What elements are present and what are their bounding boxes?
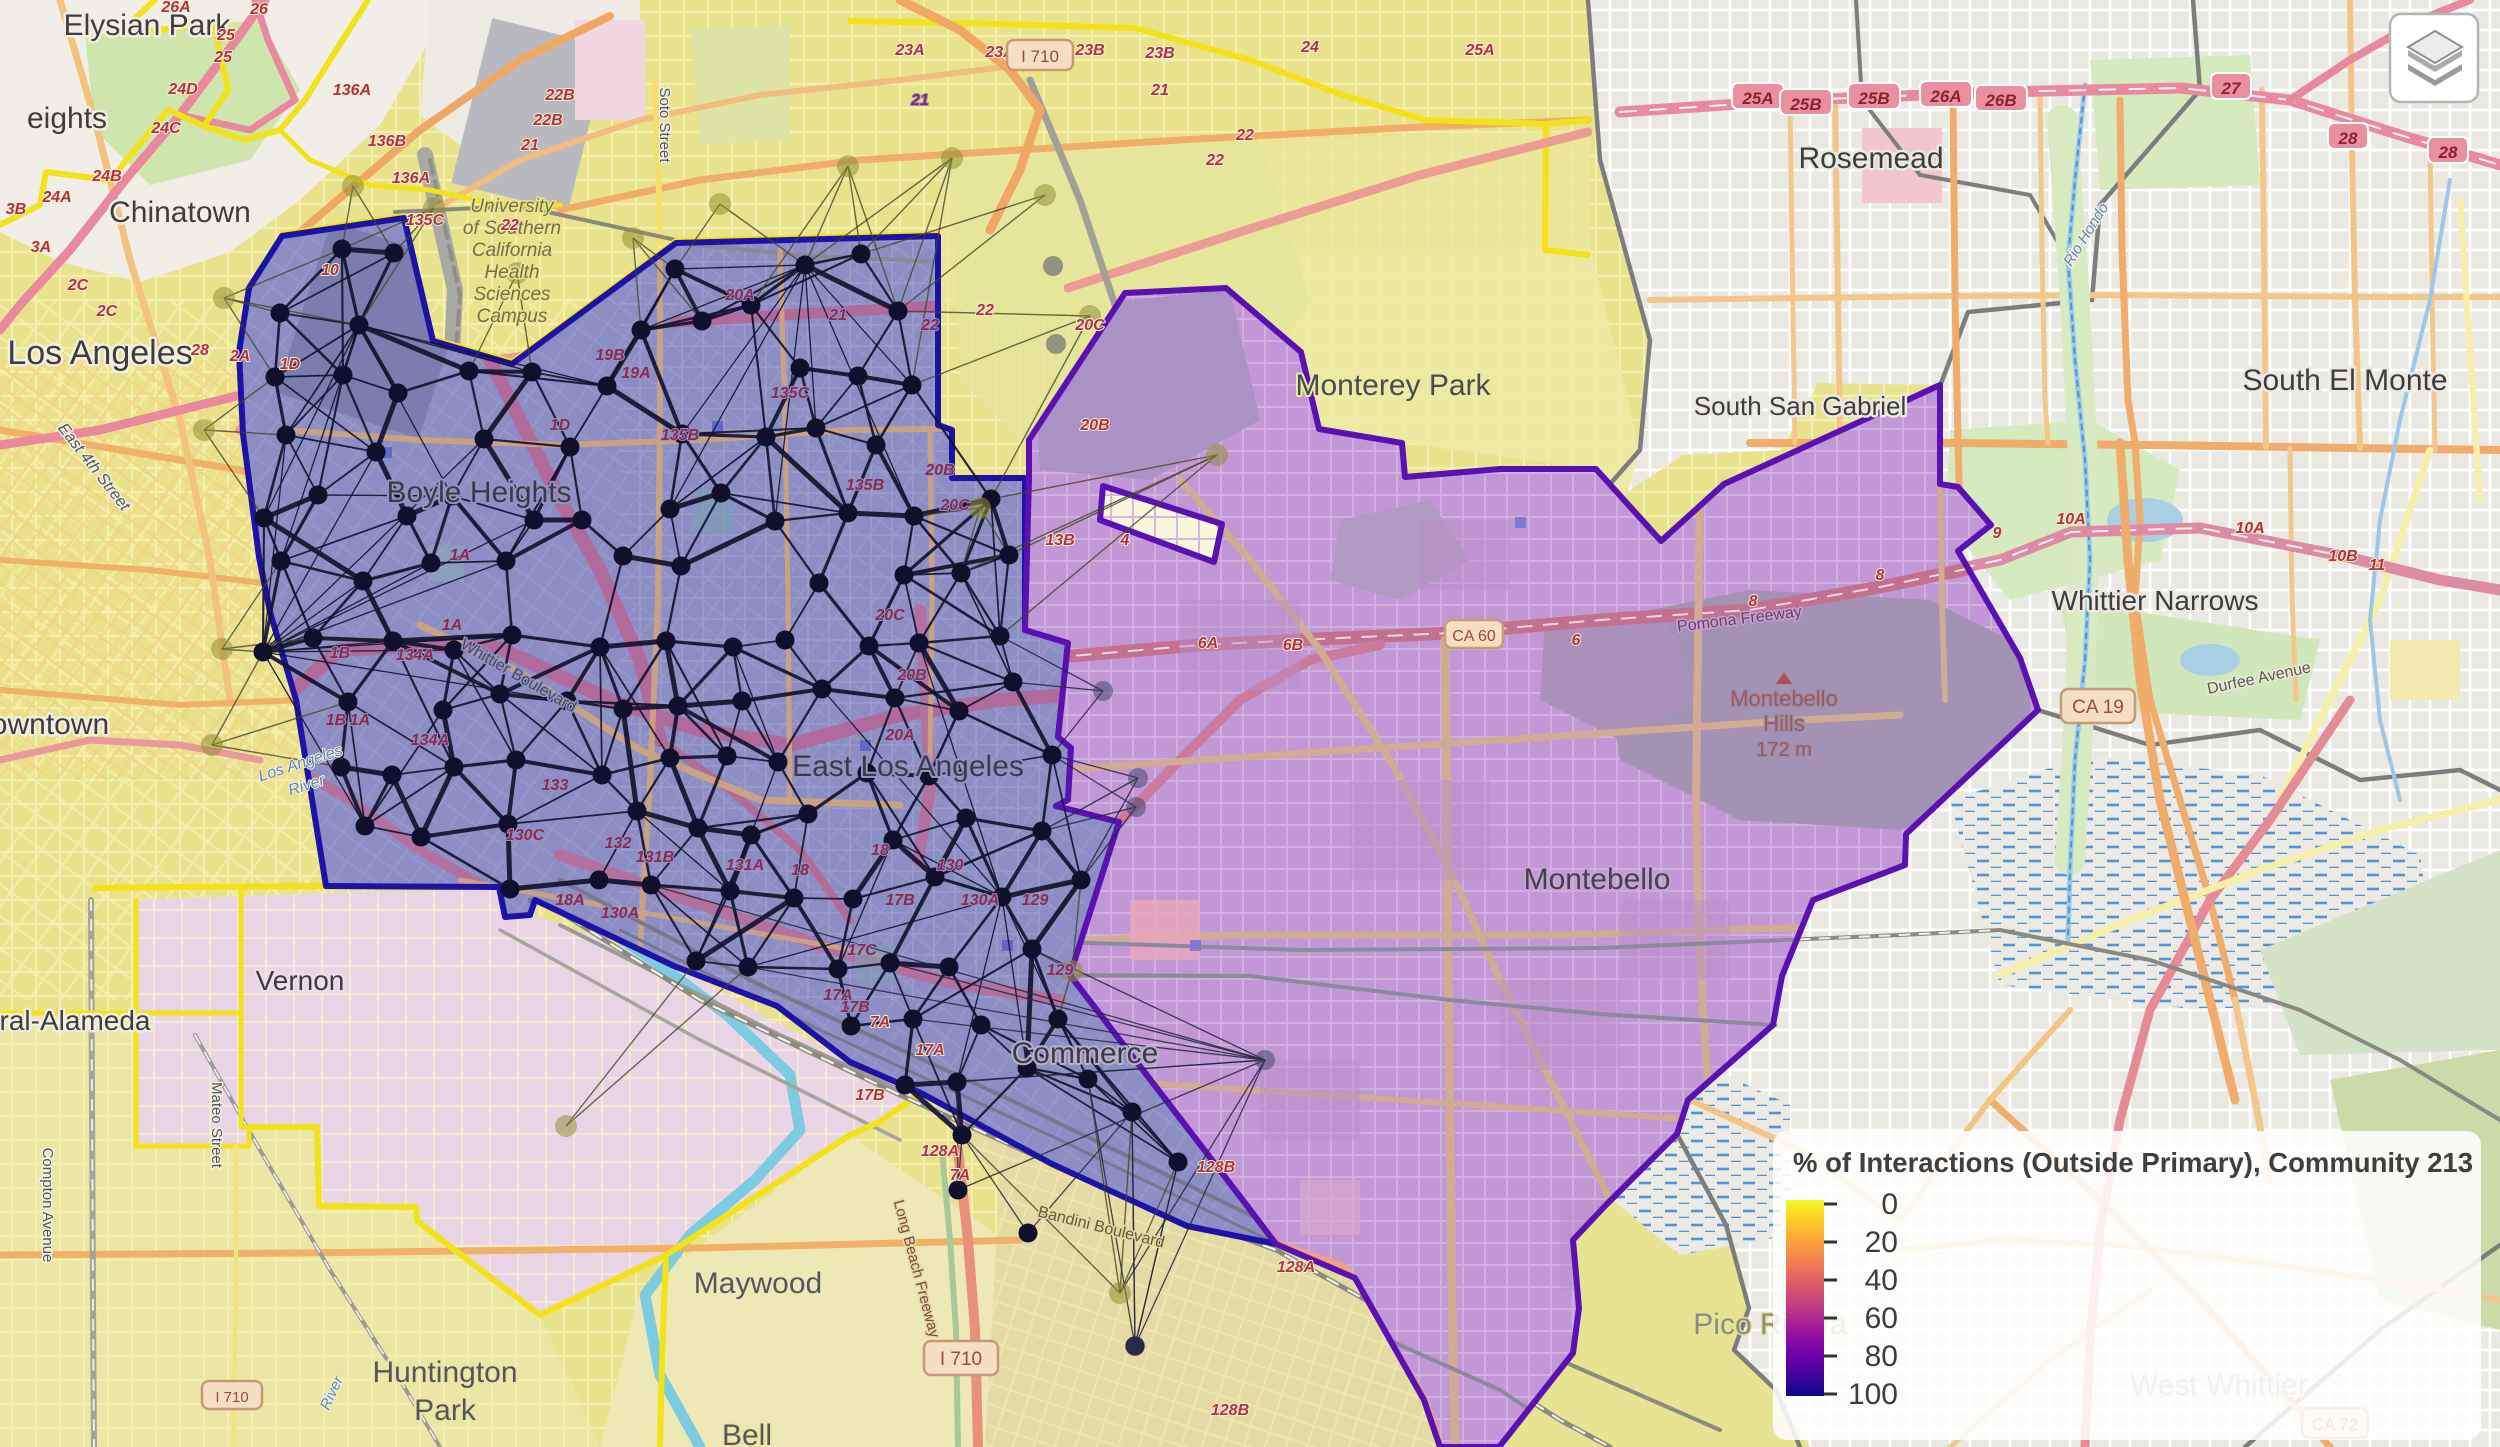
svg-text:8: 8 — [1876, 567, 1885, 584]
svg-text:CA 60: CA 60 — [1452, 628, 1496, 645]
svg-text:6A: 6A — [1198, 635, 1218, 652]
svg-text:Huntington: Huntington — [372, 1356, 517, 1389]
svg-text:Montebello: Montebello — [1524, 863, 1671, 896]
svg-text:2C: 2C — [67, 277, 89, 294]
svg-text:28: 28 — [190, 342, 209, 359]
svg-text:20: 20 — [1865, 1226, 1898, 1259]
svg-text:1D: 1D — [550, 417, 571, 434]
svg-text:Sciences: Sciences — [473, 284, 551, 305]
svg-text:20A: 20A — [884, 727, 914, 744]
svg-text:1A: 1A — [350, 712, 370, 729]
svg-text:131A: 131A — [726, 857, 764, 874]
svg-text:22: 22 — [975, 302, 994, 319]
svg-text:17B: 17B — [885, 892, 914, 909]
svg-text:owntown: owntown — [0, 708, 109, 741]
svg-text:132: 132 — [605, 835, 632, 852]
svg-text:22: 22 — [1235, 127, 1254, 144]
svg-text:136A: 136A — [392, 170, 430, 187]
svg-text:130A: 130A — [961, 892, 999, 909]
svg-text:25: 25 — [216, 27, 236, 44]
svg-text:South San Gabriel: South San Gabriel — [1694, 391, 1906, 421]
svg-text:Boyle Heights: Boyle Heights — [386, 476, 571, 509]
svg-text:133: 133 — [542, 777, 569, 794]
svg-text:129: 129 — [1047, 962, 1074, 979]
svg-text:0: 0 — [1881, 1188, 1898, 1221]
svg-text:24A: 24A — [41, 189, 71, 206]
svg-text:1A: 1A — [450, 547, 470, 564]
svg-text:129: 129 — [1022, 892, 1049, 909]
svg-text:Maywood: Maywood — [694, 1267, 822, 1300]
svg-text:6: 6 — [1572, 632, 1581, 649]
svg-text:22B: 22B — [532, 112, 562, 129]
svg-text:Park: Park — [414, 1394, 477, 1427]
svg-text:24B: 24B — [91, 168, 121, 185]
svg-text:172 m: 172 m — [1756, 739, 1812, 761]
svg-text:6B: 6B — [1283, 637, 1303, 654]
svg-text:South El Monte: South El Monte — [2242, 364, 2447, 397]
svg-text:135B: 135B — [846, 477, 884, 494]
svg-text:130C: 130C — [506, 827, 545, 844]
svg-text:128B: 128B — [1197, 1159, 1235, 1176]
svg-text:25A: 25A — [1741, 89, 1773, 108]
svg-text:28: 28 — [2338, 129, 2358, 148]
svg-text:Rosemead: Rosemead — [1798, 142, 1943, 175]
svg-text:27: 27 — [2221, 79, 2242, 98]
svg-text:24C: 24C — [150, 120, 181, 137]
svg-text:3B: 3B — [6, 201, 26, 218]
svg-text:Monterey Park: Monterey Park — [1295, 369, 1491, 402]
svg-text:20A: 20A — [724, 287, 754, 304]
svg-text:19B: 19B — [595, 347, 624, 364]
svg-text:23B: 23B — [1074, 42, 1104, 59]
svg-text:18A: 18A — [555, 892, 584, 909]
svg-text:7A: 7A — [870, 1014, 890, 1031]
svg-text:18: 18 — [871, 842, 889, 859]
svg-text:1A: 1A — [442, 617, 462, 634]
svg-text:135C: 135C — [771, 385, 810, 402]
svg-text:17B: 17B — [840, 999, 869, 1016]
svg-text:135C: 135C — [406, 212, 445, 229]
svg-text:University: University — [470, 196, 555, 217]
svg-text:26B: 26B — [1984, 91, 2016, 110]
svg-text:136B: 136B — [368, 133, 406, 150]
svg-text:100: 100 — [1848, 1378, 1898, 1411]
svg-text:3A: 3A — [31, 239, 51, 256]
svg-text:60: 60 — [1865, 1302, 1898, 1335]
svg-text:10A: 10A — [2056, 511, 2085, 528]
svg-text:13B: 13B — [1045, 532, 1074, 549]
svg-text:25A: 25A — [1464, 42, 1494, 59]
svg-text:26A: 26A — [160, 0, 190, 16]
svg-text:26: 26 — [249, 1, 268, 18]
svg-text:22: 22 — [500, 217, 519, 234]
svg-text:22: 22 — [920, 317, 939, 334]
svg-text:20C: 20C — [874, 607, 905, 624]
svg-text:1D: 1D — [280, 356, 301, 373]
svg-text:CA 19: CA 19 — [2072, 697, 2124, 718]
svg-text:130A: 130A — [601, 905, 639, 922]
svg-text:23A: 23A — [894, 42, 924, 59]
svg-text:19A: 19A — [621, 365, 650, 382]
svg-text:Compton Avenue: Compton Avenue — [39, 1148, 56, 1263]
svg-text:Elysian Park: Elysian Park — [64, 9, 232, 42]
svg-text:Hills: Hills — [1763, 711, 1805, 736]
svg-text:18: 18 — [791, 862, 809, 879]
svg-text:I 710: I 710 — [940, 1349, 982, 1370]
svg-text:22B: 22B — [544, 87, 574, 104]
svg-text:21: 21 — [1150, 82, 1169, 99]
svg-text:24D: 24D — [167, 81, 198, 98]
svg-text:Commerce: Commerce — [1012, 1037, 1159, 1070]
svg-text:California: California — [472, 240, 552, 261]
svg-text:4: 4 — [1120, 532, 1130, 549]
svg-text:eights: eights — [27, 102, 107, 135]
svg-text:136A: 136A — [333, 82, 371, 99]
svg-text:10B: 10B — [2328, 548, 2357, 565]
svg-text:135B: 135B — [661, 427, 699, 444]
svg-text:Soto Street: Soto Street — [656, 87, 673, 163]
svg-text:20C: 20C — [939, 497, 970, 514]
svg-text:East Los Angeles: East Los Angeles — [792, 750, 1024, 783]
svg-text:Campus: Campus — [477, 306, 548, 327]
svg-text:Vernon: Vernon — [256, 965, 345, 996]
svg-text:22: 22 — [1205, 152, 1224, 169]
svg-text:10: 10 — [321, 262, 339, 279]
svg-text:20C: 20C — [1074, 317, 1105, 334]
svg-text:20B: 20B — [1079, 417, 1109, 434]
svg-text:25B: 25B — [1789, 95, 1821, 114]
svg-text:1B: 1B — [326, 712, 346, 729]
svg-text:25: 25 — [213, 49, 233, 66]
svg-text:Whittier Narrows: Whittier Narrows — [2052, 585, 2259, 616]
svg-text:1B: 1B — [330, 645, 350, 662]
svg-text:Mateo Street: Mateo Street — [208, 1082, 225, 1169]
svg-text:Montebello: Montebello — [1730, 686, 1838, 711]
svg-text:I 710: I 710 — [215, 1389, 248, 1406]
svg-text:10A: 10A — [2235, 520, 2264, 537]
svg-text:134A: 134A — [396, 647, 434, 664]
svg-text:134A: 134A — [411, 732, 449, 749]
svg-text:7A: 7A — [950, 1167, 970, 1184]
svg-text:128B: 128B — [1211, 1402, 1249, 1419]
svg-text:2C: 2C — [96, 303, 118, 320]
svg-text:26A: 26A — [1929, 87, 1961, 106]
svg-text:80: 80 — [1865, 1340, 1898, 1373]
svg-text:I 710: I 710 — [1021, 47, 1059, 66]
svg-text:9: 9 — [1993, 525, 2002, 542]
svg-text:23B: 23B — [1144, 45, 1174, 62]
svg-text:2A: 2A — [229, 348, 250, 365]
svg-text:11: 11 — [2369, 557, 2386, 574]
svg-text:17B: 17B — [855, 1087, 884, 1104]
svg-text:17A: 17A — [915, 1042, 944, 1059]
svg-text:21: 21 — [910, 92, 929, 109]
svg-text:131B: 131B — [636, 849, 674, 866]
svg-text:21: 21 — [828, 307, 847, 324]
svg-text:24: 24 — [1300, 39, 1319, 56]
svg-text:17C: 17C — [847, 942, 877, 959]
svg-text:Bell: Bell — [722, 1419, 772, 1447]
svg-text:20B: 20B — [924, 462, 954, 479]
svg-text:8: 8 — [1749, 593, 1758, 610]
svg-text:21: 21 — [520, 137, 539, 154]
svg-text:128A: 128A — [921, 1143, 959, 1160]
svg-text:130: 130 — [937, 857, 964, 874]
svg-text:% of Interactions (Outside Pri: % of Interactions (Outside Primary), Com… — [1793, 1147, 2473, 1178]
svg-text:ral-Alameda: ral-Alameda — [0, 1005, 151, 1036]
svg-text:Chinatown: Chinatown — [109, 196, 251, 229]
svg-text:20B: 20B — [896, 667, 926, 684]
svg-text:128A: 128A — [1277, 1259, 1315, 1276]
svg-text:40: 40 — [1865, 1264, 1898, 1297]
svg-text:25B: 25B — [1857, 89, 1889, 108]
svg-text:28: 28 — [2438, 143, 2458, 162]
svg-text:Los Angeles: Los Angeles — [7, 334, 192, 372]
svg-text:Health: Health — [485, 262, 540, 283]
